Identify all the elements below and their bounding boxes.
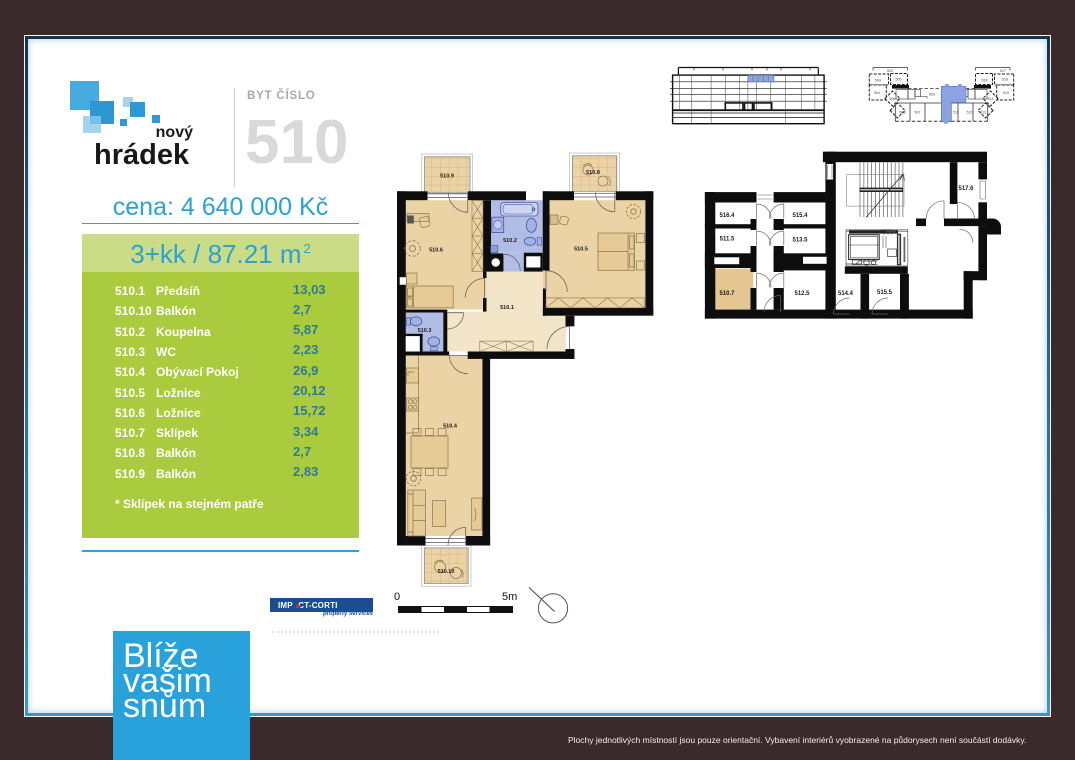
svg-text:510.10: 510.10: [438, 569, 455, 575]
svg-text:904: 904: [874, 91, 880, 95]
svg-text:515.4: 515.4: [792, 213, 808, 219]
svg-text:504: 504: [875, 79, 881, 83]
svg-text:515.5: 515.5: [877, 290, 893, 296]
svg-text:510.7: 510.7: [719, 291, 735, 297]
svg-text:510.9: 510.9: [440, 174, 454, 180]
svg-text:514: 514: [988, 97, 994, 101]
svg-text:506: 506: [890, 97, 896, 101]
svg-text:510.5: 510.5: [574, 247, 588, 253]
svg-text:508: 508: [900, 111, 906, 115]
svg-text:514.4: 514.4: [838, 291, 854, 297]
svg-text:511.5: 511.5: [720, 237, 735, 243]
svg-text:511: 511: [953, 111, 959, 115]
svg-text:510.6: 510.6: [429, 248, 443, 254]
svg-text:510.2: 510.2: [503, 238, 517, 244]
svg-text:509: 509: [929, 93, 935, 97]
svg-text:505: 505: [896, 78, 902, 82]
svg-text:517.6: 517.6: [958, 186, 974, 192]
svg-text:507: 507: [915, 111, 921, 115]
svg-text:512.5: 512.5: [794, 291, 810, 297]
svg-text:512: 512: [967, 111, 973, 115]
svg-text:510.8: 510.8: [586, 170, 600, 176]
svg-text:519: 519: [1003, 91, 1009, 95]
svg-text:502: 502: [887, 69, 893, 73]
svg-text:518: 518: [982, 79, 988, 83]
svg-text:510.1: 510.1: [500, 305, 514, 311]
svg-text:516: 516: [1002, 78, 1008, 82]
svg-text:510.3: 510.3: [418, 328, 432, 334]
svg-text:516.4: 516.4: [719, 213, 735, 219]
svg-text:513.5: 513.5: [792, 238, 808, 244]
svg-text:513: 513: [980, 111, 986, 115]
svg-text:510.4: 510.4: [443, 424, 458, 430]
svg-text:517: 517: [1000, 69, 1006, 73]
